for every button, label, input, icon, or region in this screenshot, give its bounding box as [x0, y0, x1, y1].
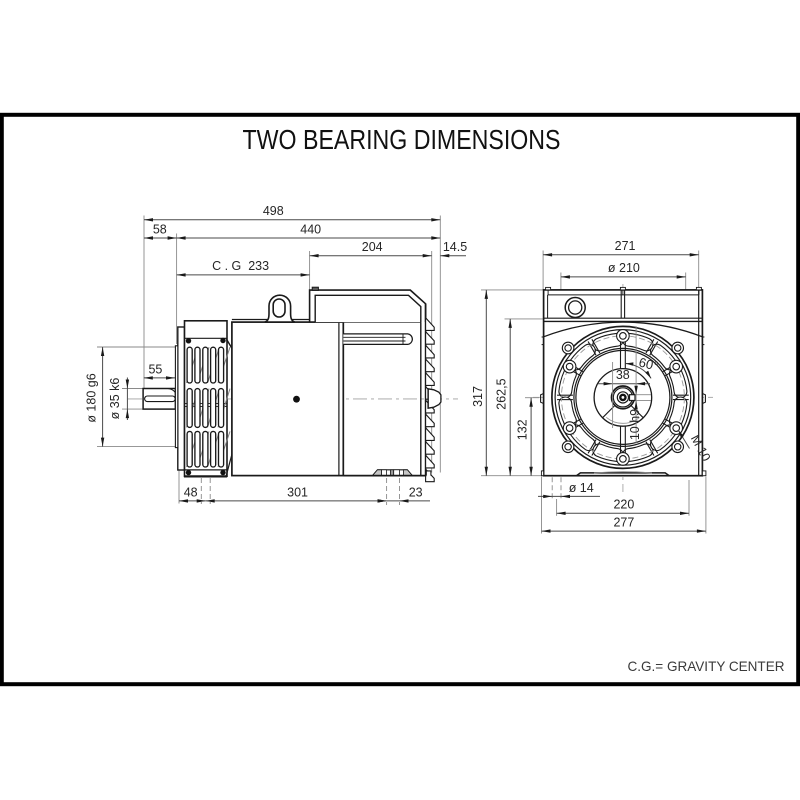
svg-text:ø 14: ø 14	[569, 481, 594, 495]
svg-text:132: 132	[515, 419, 529, 440]
svg-text:204: 204	[362, 240, 383, 254]
svg-text:440: 440	[300, 222, 321, 236]
svg-text:ø 210: ø 210	[608, 261, 640, 275]
svg-text:C.G.= GRAVITY CENTER: C.G.= GRAVITY CENTER	[628, 659, 785, 674]
svg-text:ø 35 k6: ø 35 k6	[108, 378, 122, 420]
svg-text:301: 301	[287, 485, 308, 499]
svg-text:262,5: 262,5	[495, 378, 509, 409]
svg-text:48: 48	[184, 485, 198, 499]
svg-text:277: 277	[613, 515, 634, 529]
svg-text:55: 55	[148, 363, 162, 377]
svg-text:271: 271	[615, 239, 636, 253]
svg-text:317: 317	[471, 386, 485, 407]
svg-text:ø 180 g6: ø 180 g6	[84, 373, 98, 422]
svg-text:14.5: 14.5	[443, 240, 467, 254]
svg-text:220: 220	[613, 498, 634, 512]
svg-text:498: 498	[263, 204, 284, 218]
svg-text:58: 58	[153, 222, 167, 236]
svg-text:23: 23	[409, 485, 423, 499]
svg-text:TWO BEARING DIMENSIONS: TWO BEARING DIMENSIONS	[243, 124, 561, 155]
svg-text:10 h9: 10 h9	[628, 409, 642, 440]
svg-text:38: 38	[616, 368, 630, 382]
svg-text:C . G 233: C . G 233	[212, 259, 269, 273]
